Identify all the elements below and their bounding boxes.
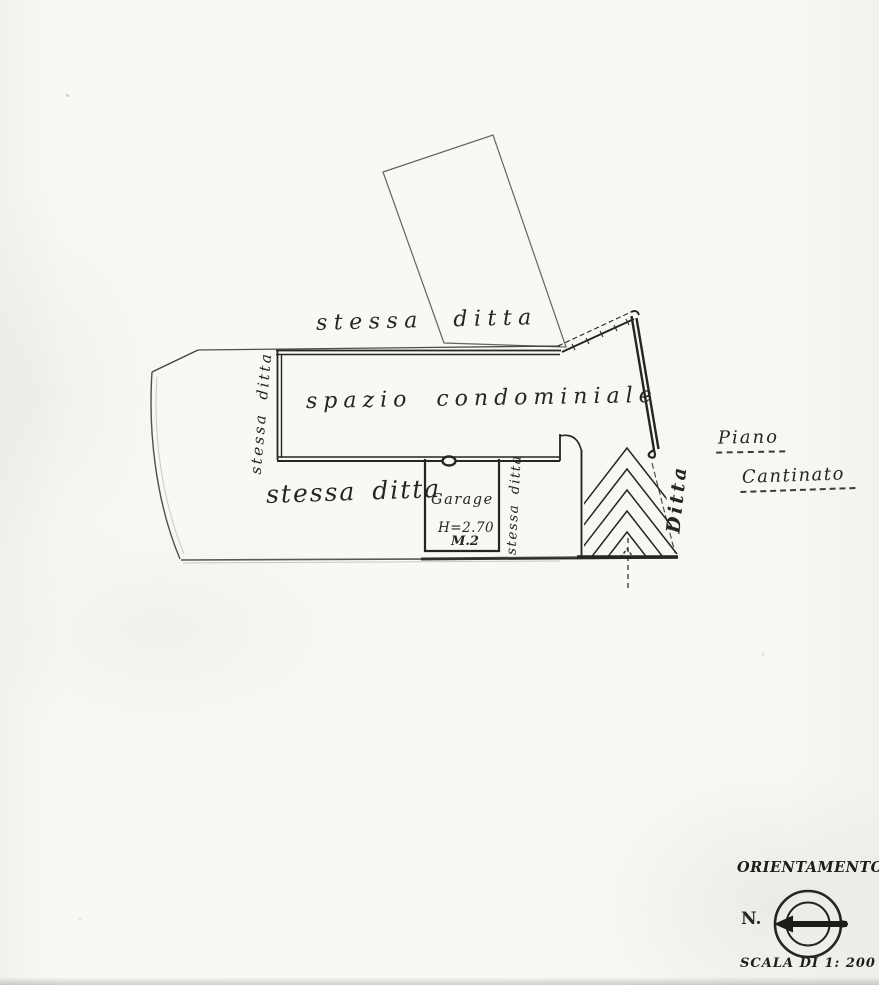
label-garage-number: M.2 <box>451 534 479 549</box>
scan-noise-speck <box>762 652 764 657</box>
label-floor-piano: Piano <box>716 426 785 453</box>
scanned-floor-plan-page: stessa ditta spazio condominiale stessa … <box>0 0 879 985</box>
orientation-title: ORIENTAMENTO <box>737 859 879 876</box>
label-lower-left: stessa ditta <box>266 474 442 509</box>
north-label: N. <box>741 909 761 929</box>
scan-noise-speck <box>79 918 81 921</box>
compass-north-arrow <box>774 891 848 957</box>
parcel-boundary <box>151 346 677 563</box>
scale-label: SCALA DI 1: 200 <box>740 956 876 971</box>
garage-door-symbol <box>443 457 456 466</box>
label-garage: Garage <box>431 492 494 508</box>
scan-noise-speck <box>66 94 69 97</box>
label-floor-cantinato: Cantinato <box>740 463 856 493</box>
